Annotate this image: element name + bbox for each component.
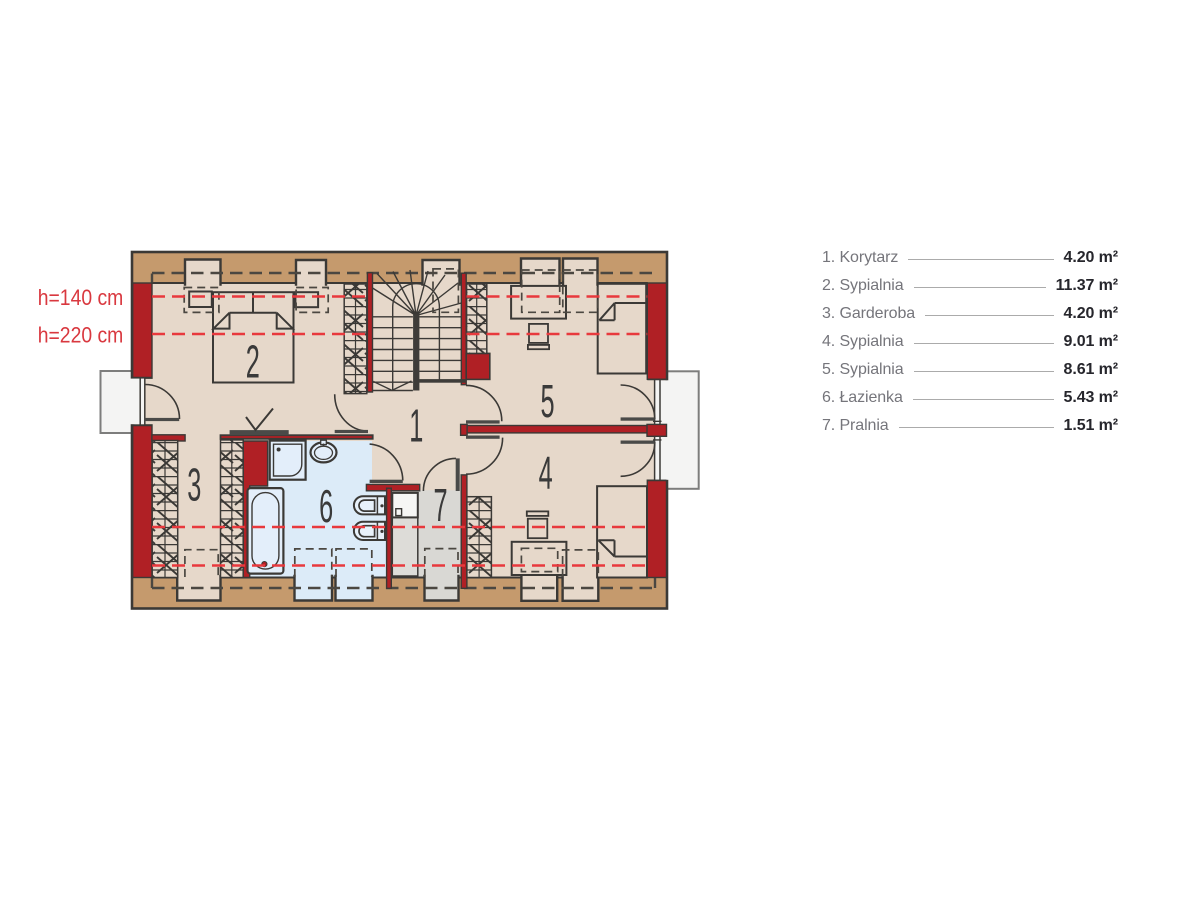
svg-text:6: 6 <box>319 480 333 532</box>
svg-text:3: 3 <box>187 459 201 511</box>
svg-text:1: 1 <box>409 400 423 452</box>
svg-text:2: 2 <box>246 335 260 387</box>
svg-text:h=220 cm: h=220 cm <box>38 323 124 347</box>
svg-text:7: 7 <box>433 479 447 531</box>
svg-text:h=140 cm: h=140 cm <box>38 286 124 310</box>
svg-text:4: 4 <box>539 446 553 498</box>
svg-text:5: 5 <box>540 375 554 427</box>
